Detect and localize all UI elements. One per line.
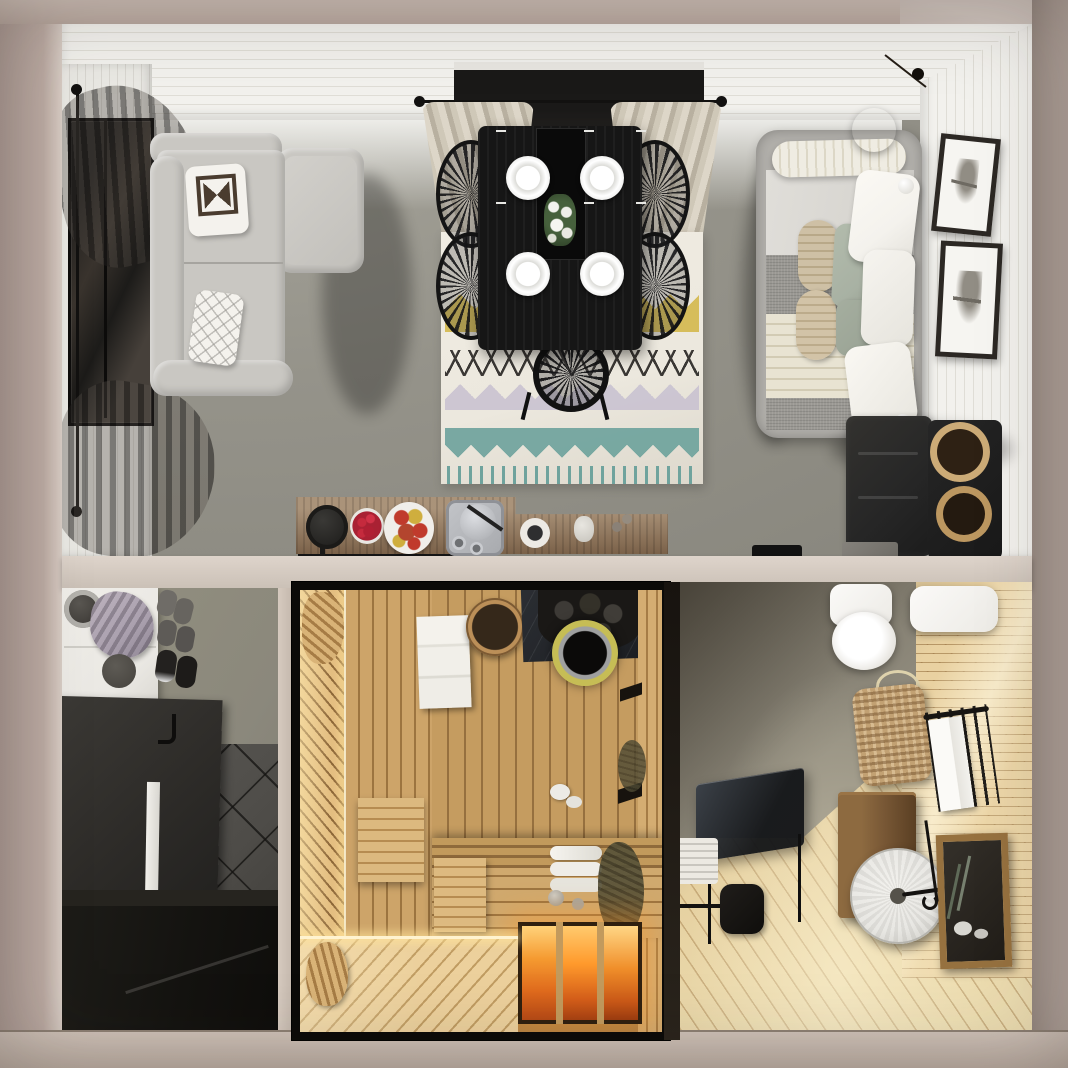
framed-mirror (936, 833, 1013, 969)
plate-bottom-right (580, 252, 624, 296)
room-sauna (292, 582, 670, 1040)
sofa-chaise-cushion (283, 156, 357, 265)
tray-cup-2 (470, 542, 483, 555)
rug-fringe (447, 466, 699, 484)
room-entryway (62, 588, 288, 1030)
paper-stand (720, 884, 764, 934)
toilet-bowl (832, 612, 896, 670)
sauna-backrest-top (302, 592, 344, 664)
aztec-cushion-motif (203, 181, 231, 209)
dresser-drawer-pulls (858, 452, 918, 455)
wardrobe-round-item (102, 654, 136, 688)
dresser-body (846, 416, 932, 556)
slippers-pair-1 (155, 588, 179, 618)
plate-top-left (506, 156, 550, 200)
counter-slab (842, 542, 898, 556)
bench-hook (158, 714, 176, 744)
framed-print-bottom (935, 240, 1003, 359)
sauna-headrest-floor (306, 942, 348, 1006)
west-sheer-curtain-bottom (62, 371, 228, 556)
raspberry-bowl (350, 508, 384, 544)
cast-iron-pan (306, 505, 348, 549)
bed-deco-ball-top (898, 178, 914, 194)
rug-row-teal (445, 428, 699, 458)
sauna-interior (300, 590, 662, 1032)
sauna-led-floor (300, 936, 518, 939)
glow-panel-1 (522, 926, 556, 1020)
plate-top-right (580, 156, 624, 200)
cutlery-marks (496, 202, 506, 204)
mirror-sprig (957, 856, 972, 911)
bed-pillow-white-2 (860, 249, 915, 347)
plate-bottom-left (506, 252, 550, 296)
floating-shelf (910, 586, 998, 632)
tree-art-bottom (952, 270, 983, 329)
sauna-jars (548, 890, 564, 906)
pan-handle (320, 546, 325, 556)
sauna-chimney (552, 620, 618, 686)
bed-pillow-knit-2 (796, 290, 836, 360)
diamond-cushion (187, 289, 245, 367)
wicker-basket-top (930, 422, 990, 482)
glow-panel-3 (604, 926, 638, 1020)
glow-divider-strips (556, 922, 563, 1024)
tree-art-top (949, 158, 980, 210)
sauna-folded-towels (416, 615, 471, 709)
exterior-wall-right (1032, 0, 1068, 1068)
slippers-pair-2 (156, 619, 178, 648)
framed-print-top (931, 133, 1001, 237)
divider-gap-sauna-bath (664, 582, 680, 1040)
hook-bar-hooks (922, 894, 938, 910)
ceramic-jar (574, 516, 594, 542)
bath-wicker-basket (851, 683, 933, 788)
glow-panel-2 (563, 926, 597, 1020)
flower-centerpiece (544, 194, 576, 246)
entry-baseboard (145, 782, 160, 900)
cooktop-slab (752, 545, 802, 556)
sauna-bucket (466, 598, 524, 656)
tray-cup-1 (452, 536, 466, 550)
radiator (680, 838, 718, 884)
glow-floor-frame (518, 922, 642, 1024)
entry-under-void (62, 906, 288, 1030)
glass-table-leg-right (798, 834, 801, 922)
sneakers (154, 649, 178, 683)
apple-plate (384, 502, 434, 554)
rolled-towels (550, 846, 602, 860)
room-bathroom (680, 582, 1032, 1030)
sauna-headrest-lower (434, 858, 486, 932)
room-living-dining (62, 24, 1032, 556)
floorplan-render (0, 0, 1068, 1068)
small-knobs (612, 522, 622, 532)
sauna-headrest-upper (358, 798, 424, 882)
wicker-basket-bottom (936, 486, 992, 542)
towel-ducks (550, 784, 570, 800)
dried-herbs-small (618, 740, 646, 792)
coffee-cup-saucer (520, 518, 550, 548)
mirror-stones (954, 921, 972, 936)
pendant-ceiling-dot (912, 68, 924, 80)
wicker-pendant-lamp (852, 108, 896, 152)
north-rod-finial-left (414, 96, 425, 107)
exterior-wall-left (0, 24, 62, 1034)
entry-bench (62, 696, 223, 898)
